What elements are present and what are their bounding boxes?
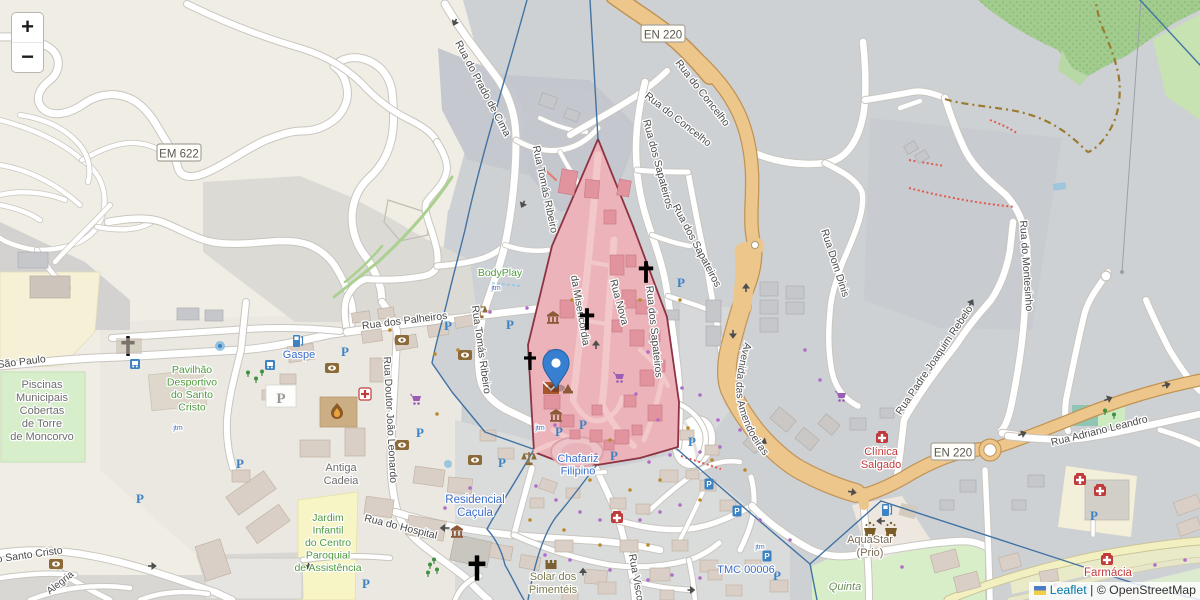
svg-text:BodyPlay: BodyPlay	[478, 267, 523, 279]
svg-text:de Assistência: de Assistência	[294, 562, 361, 574]
svg-text:P: P	[341, 344, 349, 359]
svg-text:Residencial: Residencial	[445, 494, 504, 506]
svg-text:Paroquial: Paroquial	[306, 550, 350, 562]
svg-text:Municipais: Municipais	[16, 392, 68, 404]
svg-text:P: P	[506, 317, 514, 332]
svg-text:P: P	[706, 480, 712, 489]
svg-text:P: P	[416, 425, 424, 440]
svg-text:(Prio): (Prio)	[857, 547, 884, 559]
svg-text:de Torre: de Torre	[22, 418, 62, 430]
svg-text:AquaStar: AquaStar	[847, 534, 893, 546]
svg-text:P: P	[610, 448, 618, 463]
svg-text:de Moncorvo: de Moncorvo	[10, 431, 74, 443]
svg-text:jtm: jtm	[754, 544, 765, 551]
svg-text:do Centro: do Centro	[305, 537, 351, 549]
svg-text:do Santo: do Santo	[171, 389, 213, 401]
svg-text:Salgado: Salgado	[861, 459, 901, 471]
svg-text:TMC 00006: TMC 00006	[717, 564, 774, 576]
svg-text:P: P	[362, 576, 370, 591]
svg-text:P: P	[1090, 508, 1098, 523]
svg-text:Quinta: Quinta	[829, 581, 861, 593]
svg-text:Cobertas: Cobertas	[20, 405, 65, 417]
svg-text:EN 220: EN 220	[644, 30, 682, 42]
svg-text:Cadeia: Cadeia	[324, 475, 360, 487]
svg-text:Pavilhão: Pavilhão	[172, 364, 212, 376]
svg-text:Cristo: Cristo	[178, 402, 206, 414]
svg-text:Infantil: Infantil	[313, 525, 344, 537]
svg-text:P: P	[579, 417, 587, 432]
svg-text:jtm: jtm	[490, 285, 501, 292]
svg-text:Solar dos: Solar dos	[530, 571, 577, 583]
svg-text:Chafariz: Chafariz	[558, 453, 599, 465]
svg-text:P: P	[734, 507, 740, 516]
svg-text:EN 220: EN 220	[934, 448, 972, 460]
svg-text:P: P	[236, 456, 244, 471]
svg-text:Antiga: Antiga	[325, 462, 357, 474]
svg-text:Desportivo: Desportivo	[167, 377, 217, 389]
svg-text:P: P	[764, 552, 770, 561]
svg-text:jtm: jtm	[534, 425, 545, 432]
svg-text:P: P	[498, 455, 506, 470]
svg-text:P: P	[276, 391, 285, 407]
svg-text:Piscinas: Piscinas	[22, 379, 63, 391]
svg-text:P: P	[677, 275, 685, 290]
svg-text:Jardim: Jardim	[312, 512, 344, 524]
svg-text:Gaspe: Gaspe	[283, 349, 315, 361]
svg-text:EM 622: EM 622	[159, 149, 199, 161]
svg-text:P: P	[688, 434, 696, 449]
svg-text:Clínica: Clínica	[864, 446, 899, 458]
svg-text:Filipino: Filipino	[561, 466, 596, 478]
svg-text:Farmácia: Farmácia	[1084, 567, 1133, 579]
svg-text:Caçula: Caçula	[457, 507, 493, 519]
svg-text:Pimentéis: Pimentéis	[529, 584, 578, 596]
svg-text:P: P	[136, 491, 144, 506]
svg-text:jtm: jtm	[172, 425, 183, 432]
